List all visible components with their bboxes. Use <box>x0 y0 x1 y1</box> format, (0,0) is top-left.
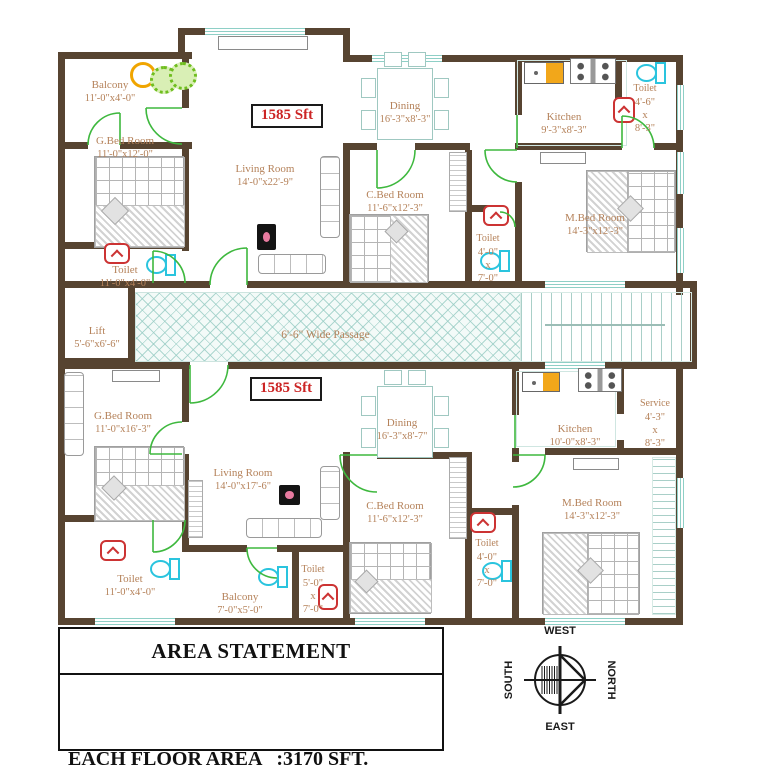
dresser <box>540 152 586 164</box>
room-label-gbed: G.Bed Room11'-0"x12'-0" <box>66 120 184 162</box>
room-label-toilet-mid-2: Toilet4'-0" x 7'-0" <box>458 525 516 591</box>
room-label-toilet-left-2: Toilet11'-0"x4'-0" <box>75 558 185 600</box>
compass-icon: WEST EAST NORTH SOUTH <box>502 618 618 742</box>
door-arc <box>153 520 185 552</box>
stair-landing-line <box>545 324 665 326</box>
wall <box>58 362 190 369</box>
wall <box>654 143 683 150</box>
room-label-balcony-2: Balcony7'-0"x5'-0" <box>188 576 292 618</box>
compass-south-label: SOUTH <box>503 661 515 700</box>
area-badge-top: 1585 Sft <box>251 104 323 128</box>
room-label-living-2: Living Room14'-0"x17'-6" <box>178 452 308 494</box>
window <box>205 28 305 35</box>
area-statement-table: AREA STATEMENT EACH FLOOR AREA :3170 SFT… <box>58 627 444 751</box>
room-label-balcony: Balcony11'-0"x4'-0" <box>62 64 158 106</box>
room-label-mbed-2: M.Bed Room14'-3"x12'-3" <box>530 482 654 524</box>
chair <box>408 370 426 385</box>
door-arc <box>485 150 517 182</box>
room-label-mbed: M.Bed Room14'-3"x12'-3" <box>533 197 657 239</box>
door-arc <box>190 365 228 403</box>
kitchen-sink <box>524 62 564 84</box>
passage-label: 6'-6" Wide Passage <box>238 313 413 342</box>
wall <box>343 143 377 150</box>
sofa <box>258 254 326 274</box>
window <box>677 85 684 130</box>
area-badge-bottom: 1585 Sft <box>250 377 322 401</box>
wall <box>415 143 470 150</box>
window <box>95 618 175 625</box>
door-arc <box>210 248 247 285</box>
tv-unit <box>257 224 276 250</box>
bed <box>349 542 431 614</box>
chair <box>384 370 402 385</box>
dresser <box>573 458 619 470</box>
wall <box>512 448 519 459</box>
chair <box>408 52 426 67</box>
dresser <box>112 370 160 382</box>
sofa <box>320 466 340 520</box>
room-label-kitchen-2: Kitchen10'-0"x8'-3" <box>520 408 630 450</box>
room-label-kitchen: Kitchen9'-3"x8'-3" <box>512 96 616 138</box>
plant-icon <box>169 62 197 90</box>
window <box>372 55 442 62</box>
stove-icon <box>570 58 616 84</box>
area-statement-title: AREA STATEMENT <box>60 629 442 675</box>
chair <box>384 52 402 67</box>
bed <box>94 446 184 522</box>
window <box>677 478 684 528</box>
wall <box>625 281 697 288</box>
room-label-cbed: C.Bed Room11'-6"x12'-3" <box>340 174 450 216</box>
stove-icon <box>578 368 622 392</box>
window-seat <box>218 36 308 50</box>
sofa <box>246 518 322 538</box>
service-stair-strip <box>652 457 676 615</box>
floor-plan-drawing: Balcony11'-0"x4'-0" G.Bed Room11'-0"x12'… <box>0 0 780 780</box>
bed <box>542 532 640 614</box>
wall <box>228 362 545 369</box>
wall <box>182 545 247 552</box>
room-label-lift: Lift5'-6"x6'-6" <box>62 310 132 352</box>
window <box>677 228 684 273</box>
room-label-living: Living Room14'-0"x22'-9" <box>200 148 330 190</box>
window <box>545 281 625 288</box>
window <box>355 618 425 625</box>
room-label-gbed-2: G.Bed Room11'-0"x16'-3" <box>64 395 182 437</box>
window <box>677 152 684 194</box>
compass-east-label: EAST <box>545 721 575 733</box>
room-label-cbed-2: C.Bed Room11'-6"x12'-3" <box>340 485 450 527</box>
compass-north-label: NORTH <box>605 660 617 699</box>
staircase <box>520 292 692 362</box>
room-label-toilet-mid: Toilet4'-0" x 7'-0" <box>460 220 516 286</box>
wall <box>515 182 522 288</box>
room-label-service: Service4'-3" x 8'-3" <box>626 385 684 451</box>
wall <box>182 369 189 422</box>
room-label-toilet-small: Toilet5'-0" x 7'-0" <box>285 551 341 617</box>
wardrobe <box>449 152 467 212</box>
compass-west-label: WEST <box>544 625 576 637</box>
room-label-dining-2: Dining16'-3"x8'-7" <box>352 402 452 444</box>
bed <box>349 214 429 282</box>
room-label-dining: Dining16'-3"x8'-3" <box>355 85 455 127</box>
wall <box>58 52 192 59</box>
room-label-toilet-left: Toilet11'-0"x4'-0" <box>70 249 180 291</box>
room-label-toilet-tr: Toilet4'-6" x 8'-3" <box>616 70 674 136</box>
area-statement-row: EACH FLOOR AREA :3170 SFT. <box>68 744 434 774</box>
bed <box>94 156 184 248</box>
kitchen-sink <box>522 372 560 392</box>
